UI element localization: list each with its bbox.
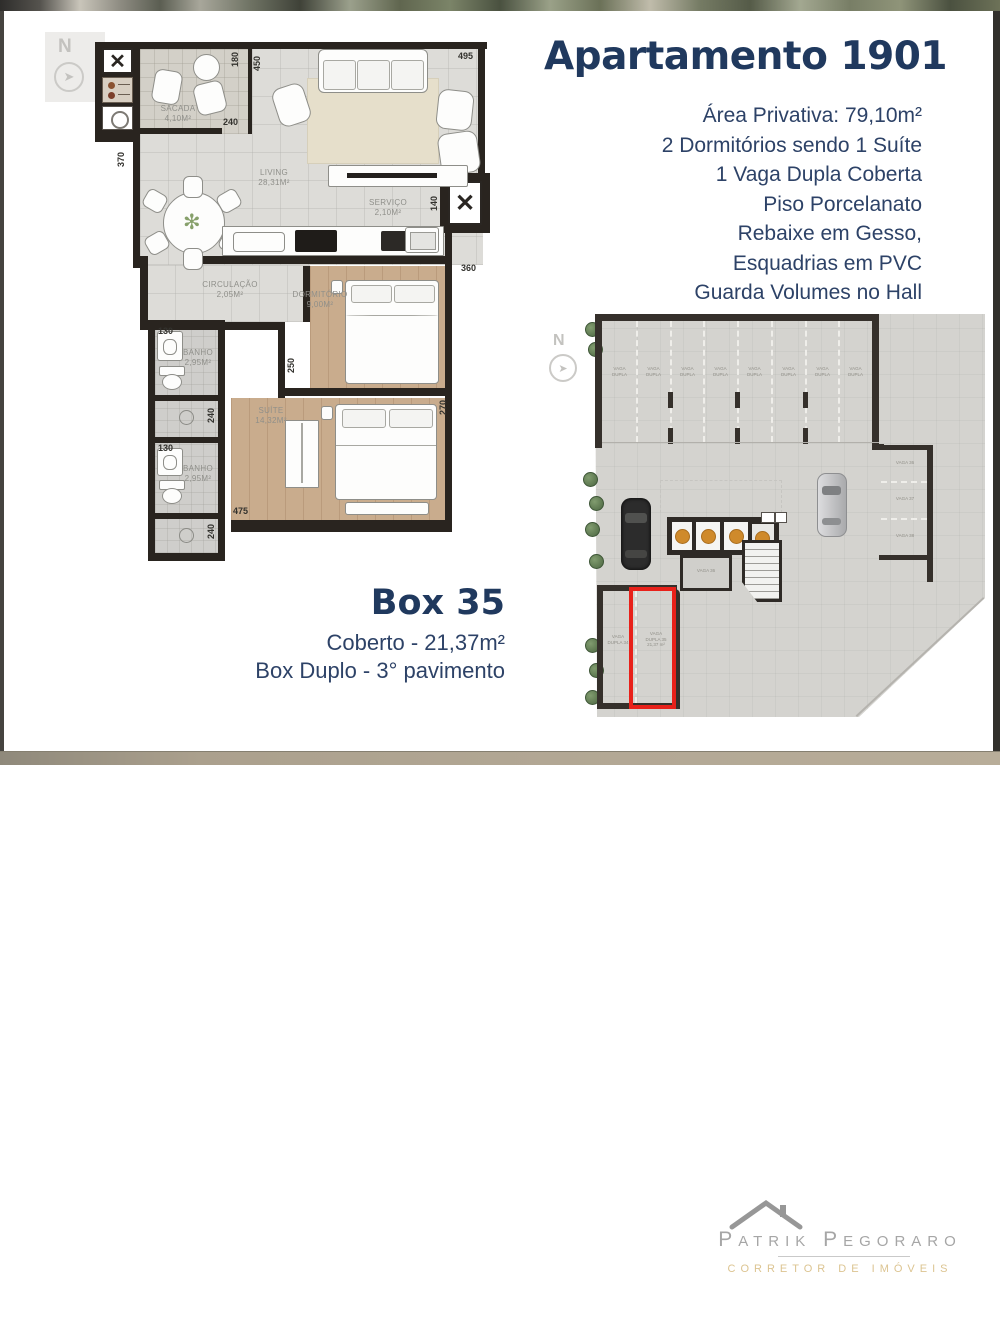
shrub-icon xyxy=(589,554,604,569)
marker-dot xyxy=(675,529,690,544)
dimension: 140 xyxy=(430,196,439,211)
dimension: 270 xyxy=(439,400,448,415)
toilet xyxy=(162,374,182,390)
shower-drain xyxy=(179,528,194,543)
box-duplo: Box Duplo - 3° pavimento xyxy=(205,657,505,685)
sofa xyxy=(318,49,428,93)
north-arrow-icon: ➤ xyxy=(549,354,577,382)
broker-tagline: CORRETOR DE IMÓVEIS xyxy=(708,1263,972,1275)
elevator-shaft-icon: ✕ xyxy=(448,181,482,225)
stall-label: VAGA DUPLA xyxy=(603,366,636,377)
dimension: 240 xyxy=(223,118,238,127)
detail-line: Piso Porcelanato xyxy=(540,190,922,220)
stall-label: VAGA DUPLA xyxy=(637,366,670,377)
flyer-page: { "header": { "title": "Apartamento 1901… xyxy=(0,0,1000,1322)
projection-outline xyxy=(660,480,782,513)
stall-label: VAGA 38 xyxy=(883,533,927,539)
shower-drain xyxy=(179,410,194,425)
pantry-shelf xyxy=(102,77,133,103)
toilet xyxy=(162,488,182,504)
stall-label: VAGA 37 xyxy=(883,496,927,502)
plant-icon: ✻ xyxy=(183,210,201,235)
page-title: Apartamento 1901 xyxy=(540,34,947,79)
north-arrow-icon: ➤ xyxy=(54,62,84,92)
room-label-banho1: BANHO 2,95m² xyxy=(172,348,224,367)
stall-label: VAGA DUPLA xyxy=(806,366,839,377)
detail-line: Rebaixe em Gesso, xyxy=(540,219,922,249)
dining-chair xyxy=(183,176,203,198)
box-coberto: Coberto - 21,37m² xyxy=(205,629,505,657)
bed-suite xyxy=(335,404,437,500)
stall-label: VAGA DUPLA xyxy=(772,366,805,377)
dimension: 250 xyxy=(287,358,296,373)
room-label-sacada: SACADA 4,10m² xyxy=(148,104,208,123)
room-label-banho2: BANHO 2,95m² xyxy=(172,464,224,483)
wardrobe xyxy=(285,420,319,488)
north-letter: N xyxy=(58,36,72,58)
dimension: 475 xyxy=(233,507,248,516)
room-label-servico: SERVIÇO 2,10m² xyxy=(358,198,418,217)
shrub-icon xyxy=(589,496,604,511)
car-black xyxy=(621,498,651,570)
elevator-shaft-icon: ✕ xyxy=(102,48,133,74)
room-label-suite: SUÍTE 14,32m² xyxy=(241,406,301,425)
box-title: Box 35 xyxy=(205,583,505,623)
apartment-floor-plan: N ➤ ✕ ✕ xyxy=(45,30,500,565)
dimension: 360 xyxy=(461,264,476,273)
dimension: 130 xyxy=(158,444,173,453)
washer-icon xyxy=(102,106,133,130)
card-right-border xyxy=(993,11,1000,752)
logo-divider xyxy=(778,1256,910,1257)
bottom-photo-bar xyxy=(0,751,1000,765)
detail-line: Guarda Volumes no Hall xyxy=(540,278,922,308)
dimension: 240 xyxy=(207,408,216,423)
room-label-living: LIVING 28,31m² xyxy=(243,168,305,187)
stall-label: VAGA DUPLA xyxy=(704,366,737,377)
house-roof-icon xyxy=(728,1198,804,1230)
broker-name: Patrik Pegoraro xyxy=(708,1228,972,1252)
detail-line: 2 Dormitórios sendo 1 Suíte xyxy=(540,131,922,161)
stall-label: VAGA 36 xyxy=(883,460,927,466)
fridge xyxy=(405,227,439,253)
shrub-icon xyxy=(583,472,598,487)
box-35-highlight xyxy=(629,587,676,709)
detail-line: Esquadrias em PVC xyxy=(540,249,922,279)
stall-label: VAGA DUPLA xyxy=(839,366,872,377)
apartment-details: Área Privativa: 79,10m² 2 Dormitórios se… xyxy=(540,101,922,308)
armchair xyxy=(435,88,475,132)
stall-label: VAGA DUPLA xyxy=(738,366,771,377)
top-photo-strip xyxy=(0,0,1000,11)
dimension: 180 xyxy=(231,52,240,67)
dimension: 450 xyxy=(253,56,262,71)
nightstand xyxy=(321,406,333,420)
detail-line: 1 Vaga Dupla Coberta xyxy=(540,160,922,190)
dimension: 240 xyxy=(207,524,216,539)
balcony-table xyxy=(193,54,220,81)
north-letter: N xyxy=(553,332,565,350)
core-room-label: VAGA 36 xyxy=(685,568,727,574)
tv-console xyxy=(328,165,468,187)
room-label-circulacao: CIRCULAÇÃO 2,05m² xyxy=(193,280,267,299)
detail-line: Área Privativa: 79,10m² xyxy=(540,101,922,131)
bed-double xyxy=(345,280,439,384)
marker-dot xyxy=(701,529,716,544)
box-info: Box 35 Coberto - 21,37m² Box Duplo - 3° … xyxy=(205,583,505,685)
garage-plan: N ➤ VAGA DUPLA VAGA DUPLA VAGA DUPLA VAG… xyxy=(545,308,990,720)
room-label-dormitorio: DORMITÓRIO 9,00m² xyxy=(283,290,357,309)
dining-chair xyxy=(183,248,203,270)
broker-logo: Patrik Pegoraro CORRETOR DE IMÓVEIS xyxy=(700,1192,980,1292)
shrub-icon xyxy=(585,522,600,537)
car-silver xyxy=(817,473,847,537)
dimension: 370 xyxy=(117,152,126,167)
card-left-border xyxy=(0,11,4,752)
dimension: 495 xyxy=(458,52,473,61)
stall-label: VAGA DUPLA xyxy=(671,366,704,377)
dimension: 130 xyxy=(158,327,173,336)
bed-bench xyxy=(345,502,429,515)
marker-dot xyxy=(729,529,744,544)
